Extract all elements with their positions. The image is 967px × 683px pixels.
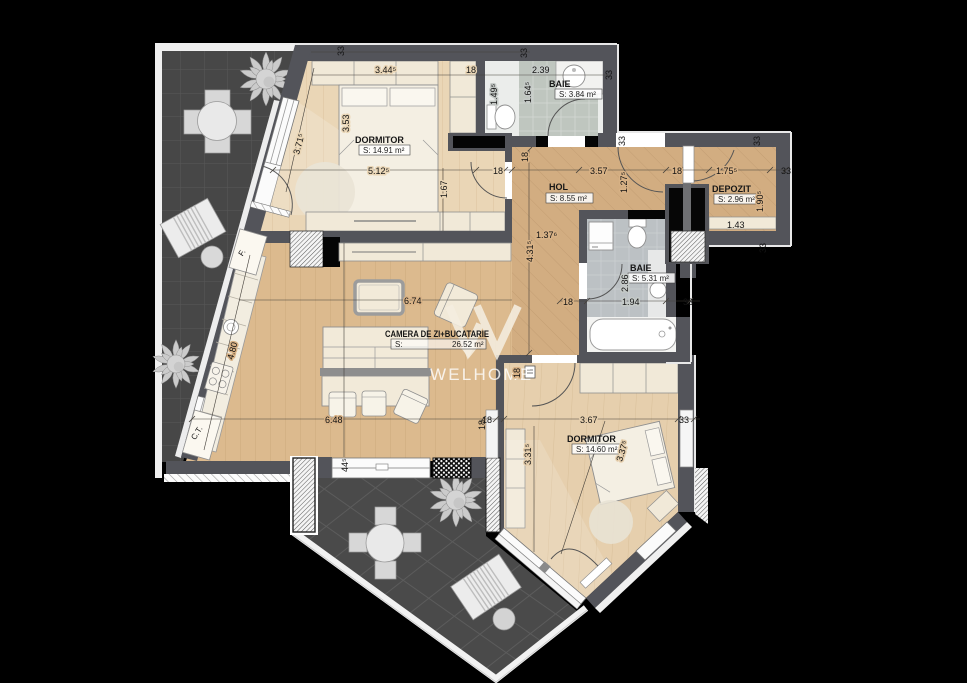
svg-text:18: 18 (520, 152, 530, 162)
svg-text:33: 33 (758, 243, 768, 253)
svg-text:1.94: 1.94 (622, 297, 640, 307)
svg-text:S: 5.31 m²: S: 5.31 m² (632, 274, 669, 283)
svg-text:33: 33 (781, 166, 791, 176)
svg-text:S: 14.60 m²: S: 14.60 m² (576, 445, 618, 454)
svg-text:3.53: 3.53 (341, 114, 351, 132)
svg-text:S: 14.91 m²: S: 14.91 m² (363, 146, 405, 155)
svg-text:44⁵: 44⁵ (340, 458, 350, 472)
svg-text:33: 33 (604, 70, 614, 80)
svg-text:5.12⁵: 5.12⁵ (368, 166, 390, 176)
svg-text:33: 33 (752, 136, 762, 146)
svg-text:18: 18 (493, 166, 503, 176)
svg-text:2.86: 2.86 (620, 274, 630, 292)
svg-text:DORMITOR: DORMITOR (355, 135, 404, 145)
svg-text:18: 18 (563, 297, 573, 307)
svg-text:1.49⁵: 1.49⁵ (489, 83, 499, 105)
svg-text:1.43: 1.43 (727, 220, 745, 230)
svg-text:33: 33 (617, 136, 627, 146)
svg-text:1.37⁶: 1.37⁶ (536, 230, 558, 240)
svg-text:S: 2.96 m²: S: 2.96 m² (718, 195, 755, 204)
svg-text:33: 33 (679, 415, 689, 425)
svg-text:1.90⁵: 1.90⁵ (755, 190, 765, 212)
svg-text:18: 18 (672, 166, 682, 176)
svg-text:CAMERA DE ZI+BUCATARIE: CAMERA DE ZI+BUCATARIE (385, 329, 489, 339)
svg-text:S:: S: (395, 340, 403, 349)
svg-text:4.31⁵: 4.31⁵ (525, 240, 535, 262)
svg-text:HOL: HOL (549, 182, 569, 192)
svg-text:3.44⁵: 3.44⁵ (375, 65, 397, 75)
svg-text:6.74: 6.74 (404, 296, 422, 306)
svg-text:3.57: 3.57 (590, 166, 608, 176)
svg-text:33: 33 (336, 46, 346, 56)
svg-text:S: 3.84 m²: S: 3.84 m² (559, 90, 596, 99)
svg-text:3.67: 3.67 (580, 415, 598, 425)
svg-text:BAIE: BAIE (630, 263, 652, 273)
svg-text:33: 33 (519, 48, 529, 58)
svg-text:18: 18 (477, 420, 487, 430)
svg-text:3.31⁵: 3.31⁵ (523, 443, 533, 465)
svg-text:DORMITOR: DORMITOR (567, 434, 616, 444)
svg-text:1.75⁵: 1.75⁵ (716, 166, 738, 176)
svg-text:18: 18 (466, 65, 476, 75)
svg-text:26.52 m²: 26.52 m² (452, 340, 484, 349)
svg-text:DEPOZIT: DEPOZIT (712, 184, 752, 194)
svg-text:1.67: 1.67 (439, 180, 449, 198)
svg-text:S: 8.55 m²: S: 8.55 m² (550, 194, 587, 203)
svg-text:6.48: 6.48 (325, 415, 343, 425)
svg-text:1.27⁵: 1.27⁵ (619, 171, 629, 193)
svg-text:33: 33 (683, 297, 693, 307)
svg-text:18: 18 (512, 368, 522, 378)
svg-text:BAIE: BAIE (549, 79, 571, 89)
svg-text:1.64⁵: 1.64⁵ (523, 81, 533, 103)
svg-text:2.39: 2.39 (532, 65, 550, 75)
